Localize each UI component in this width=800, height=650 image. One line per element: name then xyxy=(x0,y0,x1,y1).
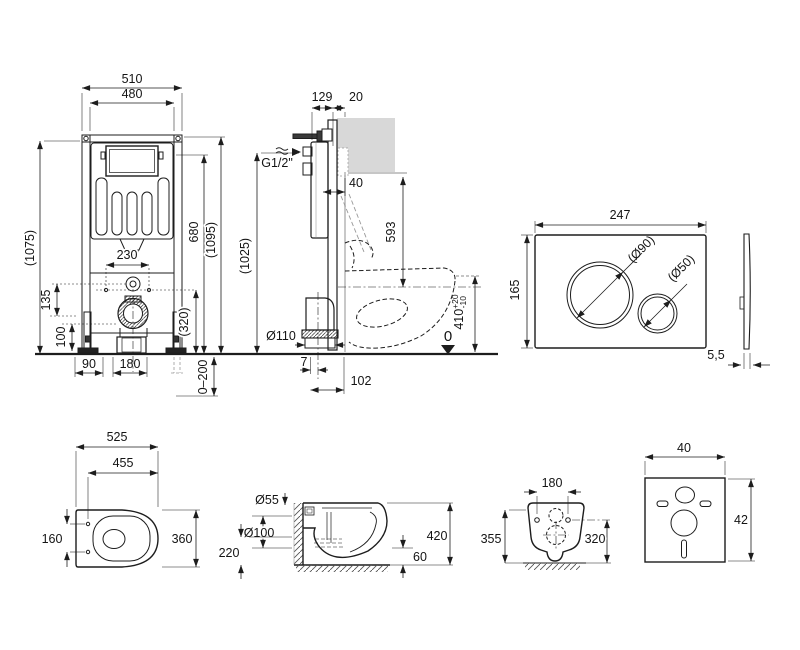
frame-front-view: 510 480 (1075) 135 100 230 (320) 680 (10… xyxy=(23,72,498,396)
dim-seat-height: 410+20-10 xyxy=(450,294,468,330)
technical-drawing-page: 510 480 (1075) 135 100 230 (320) 680 (10… xyxy=(0,0,800,650)
dim-dia-90: (Ø90) xyxy=(625,233,657,265)
wc-rear-view: 180 355 320 xyxy=(481,476,611,570)
dim-360: 360 xyxy=(172,532,193,546)
dim-160: 160 xyxy=(42,532,63,546)
dim-40-pad: 40 xyxy=(677,441,691,455)
wall-hatch xyxy=(294,503,303,565)
dim-525: 525 xyxy=(107,430,128,444)
dim-165: 165 xyxy=(508,280,522,301)
flush-plate-view: (Ø90) (Ø50) 247 165 5,5 xyxy=(508,208,770,369)
wc-rear-dimensions: 180 355 320 xyxy=(481,476,611,563)
dim-355: 355 xyxy=(481,532,502,546)
dim-180: 180 xyxy=(120,357,141,371)
cistern xyxy=(91,143,173,255)
supply-connection xyxy=(126,277,140,291)
drawing-canvas: 510 480 (1075) 135 100 230 (320) 680 (10… xyxy=(0,0,800,650)
adjustable-leg-dashes xyxy=(171,357,183,373)
inlet-hole-dashed xyxy=(549,509,563,523)
dim-90: 90 xyxy=(82,357,96,371)
dim-320-rear: 320 xyxy=(585,532,606,546)
dim-135: 135 xyxy=(39,290,53,311)
dim-inlet-dia: Ø55 xyxy=(255,493,279,507)
wc-drain-opening xyxy=(103,530,125,549)
floor-hatch xyxy=(296,565,388,572)
pad-outline xyxy=(645,478,725,562)
dim-42-pad: 42 xyxy=(734,513,748,527)
flush-plate-side-profile xyxy=(740,234,750,349)
water-supply: G1/2" xyxy=(261,148,301,170)
supply-thread-label: G1/2" xyxy=(261,156,293,170)
dim-593: 593 xyxy=(384,222,398,243)
datum-zero-label: 0 xyxy=(444,328,452,345)
wc-side-view: Ø55 Ø100 220 420 60 xyxy=(219,493,453,579)
dim-1095: (1095) xyxy=(204,222,218,258)
dim-1075: (1075) xyxy=(23,230,37,266)
dim-129: 129 xyxy=(312,90,333,104)
dim-100: 100 xyxy=(54,327,68,348)
wc-pan-outline xyxy=(76,510,158,567)
dim-drain-dia: Ø110 xyxy=(266,329,296,343)
dim-420: 420 xyxy=(427,529,448,543)
wc-pan-profile xyxy=(303,503,387,557)
wc-pan-dashed-outline xyxy=(345,240,455,348)
pad-slot-left xyxy=(657,501,668,507)
dim-outlet-dia: Ø100 xyxy=(244,526,275,540)
dim-480: 480 xyxy=(122,87,143,101)
dim-180-rear: 180 xyxy=(542,476,563,490)
frame-front-dimensions: 510 480 (1075) 135 100 230 (320) 680 (10… xyxy=(23,72,225,396)
dim-dia-50: (Ø50) xyxy=(665,252,697,284)
floor-hatch xyxy=(525,563,580,570)
dim-0-200: 0–200 xyxy=(196,360,210,395)
dim-320: (320) xyxy=(177,307,191,336)
dim-1025: (1025) xyxy=(238,238,252,274)
wc-top-view: 525 455 160 360 xyxy=(42,430,200,567)
inspection-window xyxy=(106,146,158,176)
dim-60: 60 xyxy=(413,550,427,564)
pad-inlet-cutout xyxy=(676,487,695,503)
dim-230: 230 xyxy=(117,248,138,262)
dim-510: 510 xyxy=(122,72,143,86)
flush-plate xyxy=(535,235,706,348)
pad-slot-bottom xyxy=(682,540,687,558)
supply-arrow-icon xyxy=(292,148,301,156)
dim-20: 20 xyxy=(349,90,363,104)
frame-side-view: G1/2" 129 20 40 593 xyxy=(238,90,482,394)
dim-102: 102 xyxy=(351,374,372,388)
sound-pad-view: 40 42 xyxy=(645,441,755,562)
dim-247: 247 xyxy=(610,208,631,222)
dim-455: 455 xyxy=(113,456,134,470)
pad-slot-right xyxy=(700,501,711,507)
dim-7: 7 xyxy=(301,355,308,369)
wc-bowl-rim xyxy=(93,516,150,561)
dim-40: 40 xyxy=(349,176,363,190)
dim-220: 220 xyxy=(219,546,240,560)
pad-drain-cutout xyxy=(671,510,697,536)
dim-680: 680 xyxy=(187,222,201,243)
dim-5-5: 5,5 xyxy=(707,348,724,362)
